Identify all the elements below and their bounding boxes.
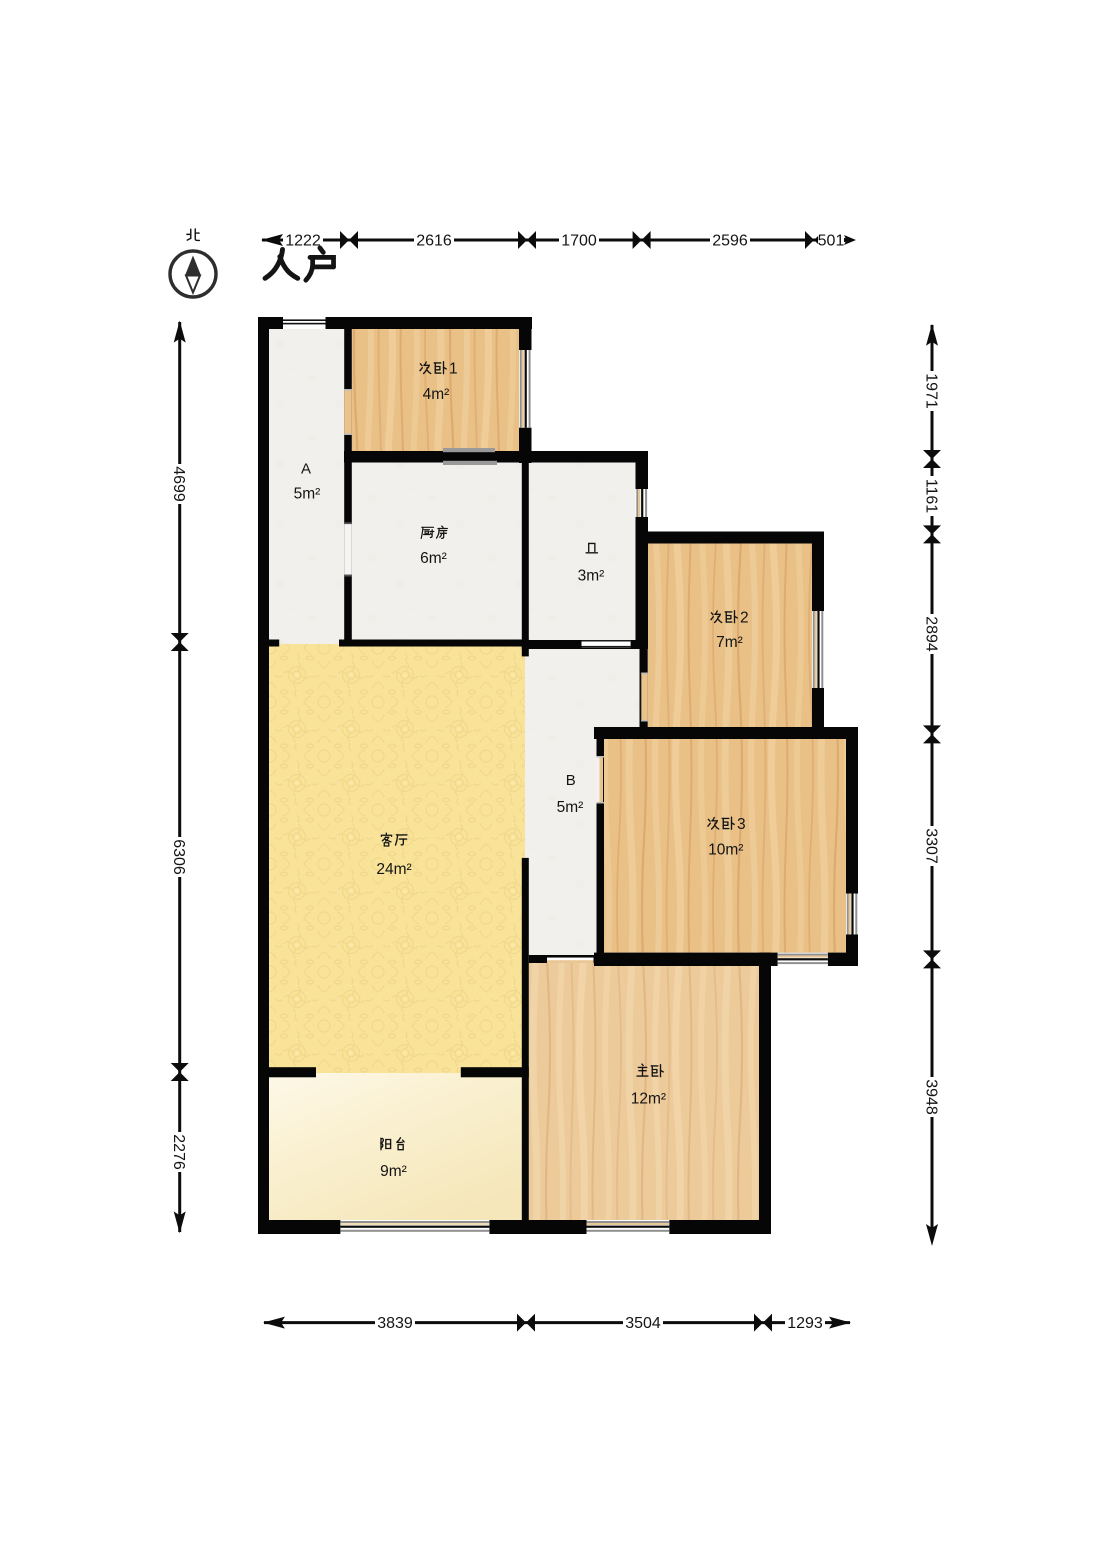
svg-text:6306: 6306 xyxy=(170,839,187,875)
svg-text:1161: 1161 xyxy=(923,479,940,514)
svg-text:12m²: 12m² xyxy=(631,1091,666,1108)
svg-text:1971: 1971 xyxy=(923,373,940,409)
svg-text:4699: 4699 xyxy=(170,466,187,502)
svg-text:3m²: 3m² xyxy=(578,568,605,585)
svg-text:A: A xyxy=(301,461,311,478)
svg-text:2: 2 xyxy=(740,610,749,627)
svg-text:3: 3 xyxy=(737,816,746,833)
svg-text:6m²: 6m² xyxy=(420,550,447,567)
svg-text:24m²: 24m² xyxy=(376,861,411,878)
svg-text:3307: 3307 xyxy=(923,828,940,864)
svg-text:10m²: 10m² xyxy=(708,842,743,859)
svg-text:501: 501 xyxy=(818,233,845,250)
svg-text:3948: 3948 xyxy=(923,1079,940,1115)
svg-text:5m²: 5m² xyxy=(294,486,321,503)
svg-text:5m²: 5m² xyxy=(557,799,584,816)
svg-text:1222: 1222 xyxy=(285,233,321,250)
svg-text:B: B xyxy=(566,772,576,789)
svg-text:1700: 1700 xyxy=(561,233,597,250)
svg-text:7m²: 7m² xyxy=(716,634,743,651)
svg-text:2596: 2596 xyxy=(712,233,748,250)
svg-text:2894: 2894 xyxy=(923,616,940,652)
svg-text:9m²: 9m² xyxy=(380,1163,407,1180)
svg-text:2616: 2616 xyxy=(416,233,452,250)
svg-text:4m²: 4m² xyxy=(423,386,450,403)
svg-text:3504: 3504 xyxy=(625,1315,661,1332)
svg-text:1293: 1293 xyxy=(787,1315,823,1332)
svg-text:2276: 2276 xyxy=(170,1134,187,1170)
svg-text:1: 1 xyxy=(449,361,458,378)
svg-text:3839: 3839 xyxy=(377,1315,413,1332)
